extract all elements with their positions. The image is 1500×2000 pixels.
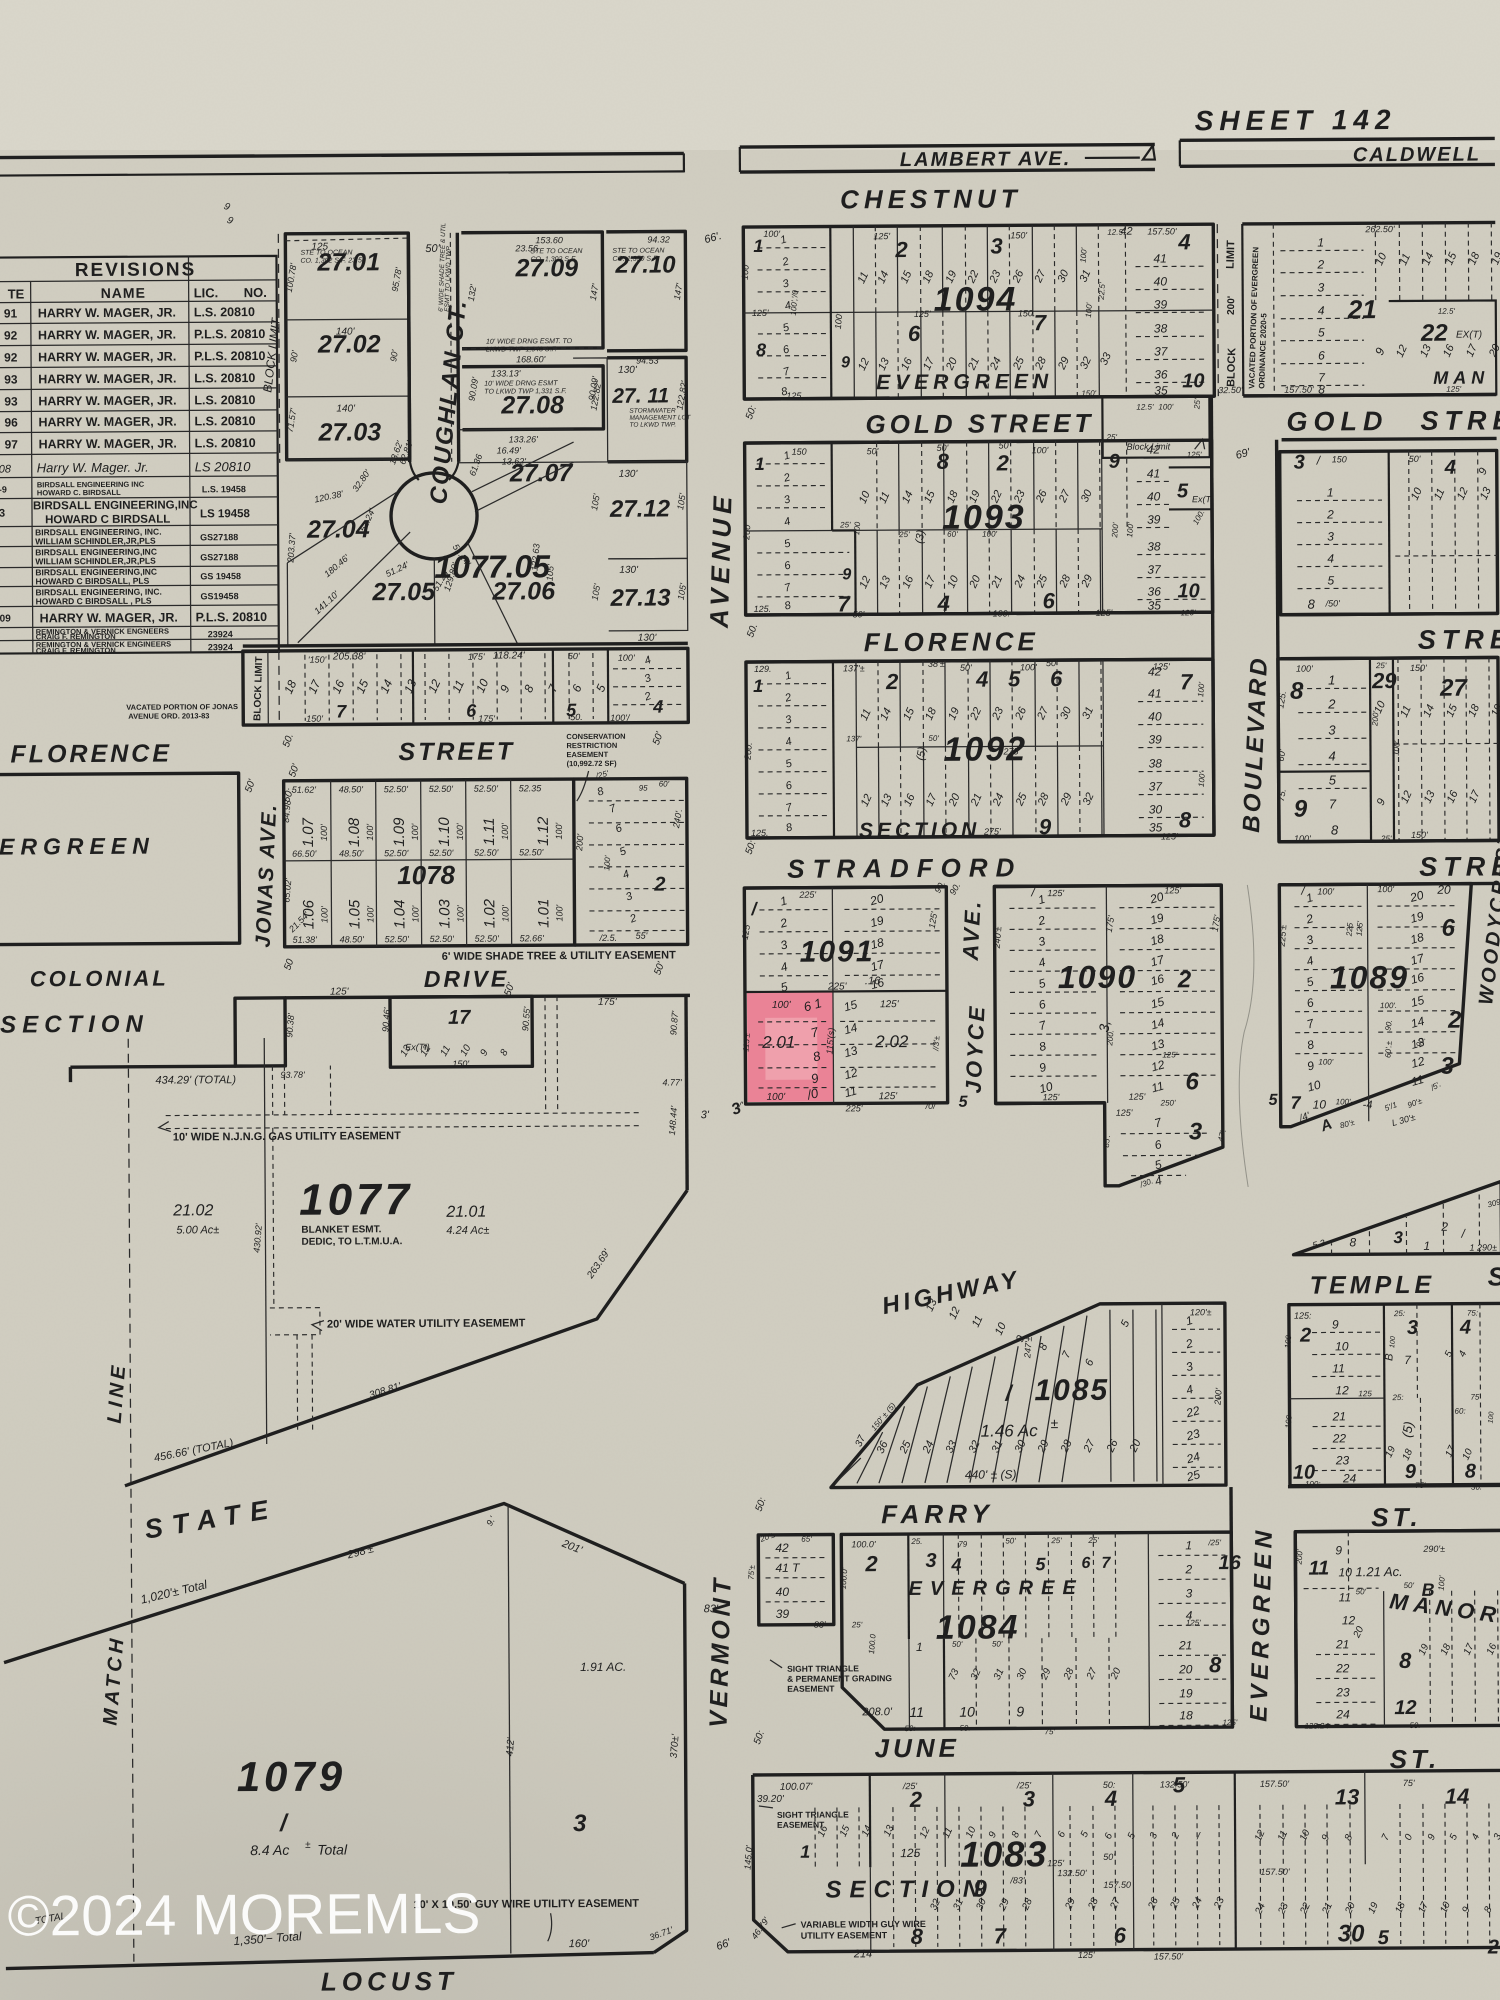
svg-text:21: 21 bbox=[1347, 294, 1377, 324]
svg-text:125': 125' bbox=[1129, 1092, 1146, 1102]
svg-text:140': 140' bbox=[336, 403, 356, 414]
svg-text:42: 42 bbox=[775, 1541, 789, 1555]
svg-text:42: 42 bbox=[1147, 442, 1161, 456]
svg-text:TO LKWD TWP 1,331 S.F.: TO LKWD TWP 1,331 S.F. bbox=[484, 388, 566, 396]
svg-text:3: 3 bbox=[1440, 1053, 1454, 1080]
svg-text:1090: 1090 bbox=[1058, 959, 1137, 995]
svg-text:30: 30 bbox=[1149, 802, 1163, 816]
svg-text:17: 17 bbox=[448, 1007, 471, 1029]
svg-text:2: 2 bbox=[1327, 696, 1336, 711]
svg-text:21: 21 bbox=[1335, 1637, 1349, 1651]
svg-text:18: 18 bbox=[1179, 1708, 1193, 1722]
svg-text:79: 79 bbox=[958, 1540, 968, 1549]
svg-text:100': 100' bbox=[319, 824, 329, 841]
svg-text:1084: 1084 bbox=[936, 1608, 1020, 1647]
svg-text:100': 100' bbox=[1197, 771, 1207, 787]
svg-text:1.04: 1.04 bbox=[391, 899, 408, 928]
svg-text:1: 1 bbox=[916, 1640, 923, 1654]
svg-text:21.01: 21.01 bbox=[445, 1204, 486, 1221]
svg-text:HOWARD C BIRDSALL: HOWARD C BIRDSALL bbox=[45, 514, 170, 527]
svg-text:125': 125' bbox=[1043, 1092, 1060, 1102]
svg-text:52.66': 52.66' bbox=[520, 933, 545, 943]
svg-text:100: 100 bbox=[1284, 1414, 1294, 1429]
svg-text:1085: 1085 bbox=[1034, 1374, 1109, 1407]
svg-text:6' WIDE SHADE TREE & UTILITY E: 6' WIDE SHADE TREE & UTILITY EASEMENT bbox=[442, 949, 676, 962]
svg-text:125': 125' bbox=[1047, 888, 1064, 898]
svg-text:5: 5 bbox=[1035, 1554, 1046, 1574]
svg-text:100': 100' bbox=[1296, 664, 1313, 674]
svg-text:1077: 1077 bbox=[299, 1175, 413, 1225]
svg-text:94.32: 94.32 bbox=[647, 234, 670, 244]
svg-text:5.00 Ac±: 5.00 Ac± bbox=[176, 1224, 219, 1236]
svg-text:FLORENCE: FLORENCE bbox=[10, 740, 172, 769]
svg-text:CO. 1,302 S.F. 23.56: CO. 1,302 S.F. 23.56 bbox=[300, 257, 365, 264]
svg-text:200.: 200. bbox=[742, 742, 753, 761]
svg-text:100.07': 100.07' bbox=[780, 1782, 814, 1793]
svg-text:100': 100' bbox=[740, 262, 751, 280]
svg-text:1.08: 1.08 bbox=[346, 817, 363, 847]
svg-text:SHEET 142: SHEET 142 bbox=[1195, 104, 1397, 136]
svg-text:10: 10 bbox=[1182, 370, 1204, 392]
svg-text:100: 100 bbox=[1389, 1336, 1397, 1348]
svg-text:9: 9 bbox=[1335, 1543, 1342, 1557]
svg-text:100: 100 bbox=[1283, 1334, 1293, 1349]
svg-text:UTILITY EASEMENT: UTILITY EASEMENT bbox=[801, 1930, 888, 1941]
svg-text:27.07: 27.07 bbox=[509, 459, 574, 487]
svg-text:13: 13 bbox=[1335, 1784, 1360, 1809]
svg-text:1.01: 1.01 bbox=[535, 899, 552, 928]
svg-text:5: 5 bbox=[1269, 1092, 1279, 1109]
svg-text:40: 40 bbox=[1154, 274, 1168, 288]
svg-text:29: 29 bbox=[1371, 668, 1397, 693]
svg-text:1: 1 bbox=[755, 454, 765, 474]
svg-text:12: 12 bbox=[1342, 1613, 1356, 1627]
svg-text:1078: 1078 bbox=[397, 860, 456, 890]
svg-text:60'.±: 60'.± bbox=[1383, 1040, 1393, 1058]
svg-text:5: 5 bbox=[959, 1094, 969, 1111]
svg-text:65.02': 65.02' bbox=[281, 878, 293, 903]
svg-text:50': 50' bbox=[568, 651, 580, 661]
svg-text:125': 125' bbox=[752, 308, 769, 318]
svg-text:25': 25' bbox=[898, 530, 910, 539]
svg-text:52.50': 52.50' bbox=[474, 848, 499, 858]
svg-text:200': 200' bbox=[1370, 710, 1380, 727]
svg-text:2: 2 bbox=[1184, 1562, 1192, 1576]
svg-text:100: 100 bbox=[852, 521, 862, 536]
svg-text:125': 125' bbox=[880, 999, 900, 1010]
svg-text:25': 25' bbox=[1192, 398, 1202, 411]
svg-text:-4: -4 bbox=[1363, 1099, 1373, 1111]
svg-text:GS27188: GS27188 bbox=[200, 552, 238, 562]
svg-text:CHESTNUT: CHESTNUT bbox=[840, 183, 1022, 214]
svg-text:HARRY W. MAGER, JR.: HARRY W. MAGER, JR. bbox=[38, 414, 176, 429]
svg-text:RESTRICTION: RESTRICTION bbox=[566, 741, 617, 750]
svg-text:6: 6 bbox=[1318, 348, 1325, 362]
svg-text:39: 39 bbox=[1147, 512, 1161, 526]
svg-text:91: 91 bbox=[4, 306, 18, 320]
svg-text:39.20': 39.20' bbox=[757, 1794, 785, 1805]
svg-text:11: 11 bbox=[1339, 1590, 1352, 1604]
svg-text:40: 40 bbox=[776, 1585, 790, 1599]
svg-text:200': 200' bbox=[574, 833, 585, 852]
svg-text:1.10: 1.10 bbox=[436, 817, 453, 847]
svg-text:125': 125' bbox=[1162, 1050, 1177, 1059]
svg-text:23: 23 bbox=[1335, 1453, 1350, 1467]
svg-text:11: 11 bbox=[1332, 1361, 1345, 1375]
svg-text:90': 90' bbox=[288, 350, 300, 364]
svg-text:100': 100' bbox=[1020, 662, 1037, 672]
svg-text:1.11: 1.11 bbox=[481, 817, 498, 845]
svg-text:100': 100' bbox=[319, 906, 329, 923]
svg-text:27.02: 27.02 bbox=[317, 330, 381, 358]
svg-text:AVE.: AVE. bbox=[958, 898, 986, 962]
svg-text:95: 95 bbox=[639, 784, 649, 793]
svg-text:38: 38 bbox=[1154, 321, 1168, 335]
svg-text:100': 100' bbox=[767, 1092, 787, 1103]
svg-text:1.07: 1.07 bbox=[300, 817, 317, 847]
svg-text:60': 60' bbox=[1276, 749, 1288, 763]
svg-text:STREET: STREET bbox=[398, 737, 515, 766]
svg-text:115'±: 115'± bbox=[741, 1032, 752, 1052]
svg-text:VERMONT: VERMONT bbox=[704, 1575, 736, 1729]
svg-text:125': 125' bbox=[1047, 1858, 1064, 1868]
svg-text:EASEMENT: EASEMENT bbox=[566, 750, 608, 759]
svg-text:STE TO OCEAN: STE TO OCEAN bbox=[300, 249, 353, 256]
svg-text:CO. 1,302 S.F.: CO. 1,302 S.F. bbox=[530, 256, 576, 263]
svg-text:157.50': 157.50' bbox=[1284, 385, 1314, 395]
svg-text:7: 7 bbox=[1101, 1555, 1111, 1572]
svg-text:25': 25' bbox=[1087, 1536, 1099, 1545]
svg-text:4: 4 bbox=[1459, 1317, 1471, 1339]
svg-text:100: 100 bbox=[1488, 1411, 1496, 1423]
svg-text:50': 50' bbox=[992, 1639, 1003, 1648]
svg-text:DRIVE: DRIVE bbox=[424, 965, 509, 992]
svg-text:L.S. 20810: L.S. 20810 bbox=[194, 371, 255, 385]
svg-text:27: 27 bbox=[1439, 675, 1469, 702]
svg-text:FARRY: FARRY bbox=[881, 1499, 994, 1530]
svg-text:100': 100' bbox=[500, 823, 510, 840]
svg-text:100': 100' bbox=[554, 822, 564, 839]
svg-text:20: 20 bbox=[1436, 883, 1451, 897]
svg-text:HARRY W. MAGER, JR.: HARRY W. MAGER, JR. bbox=[38, 371, 176, 386]
svg-text:STE TO OCEAN: STE TO OCEAN bbox=[530, 248, 583, 255]
svg-text:LIMIT: LIMIT bbox=[1225, 240, 1238, 269]
svg-text:100'-: 100'- bbox=[1336, 1097, 1354, 1106]
svg-text:150': 150' bbox=[306, 714, 323, 724]
svg-text:38: 38 bbox=[1149, 756, 1163, 770]
svg-text:370±': 370±' bbox=[669, 1733, 682, 1759]
svg-text:90.46': 90.46' bbox=[380, 1007, 392, 1032]
svg-text:6: 6 bbox=[1042, 588, 1055, 613]
svg-text:(3): (3) bbox=[913, 529, 927, 545]
svg-text:MAN: MAN bbox=[1433, 367, 1489, 387]
svg-text:7: 7 bbox=[1180, 669, 1194, 694]
svg-text:11: 11 bbox=[1308, 1557, 1329, 1579]
svg-text:175': 175' bbox=[468, 652, 485, 662]
svg-text:412': 412' bbox=[505, 1736, 518, 1757]
svg-text:GS27188: GS27188 bbox=[200, 532, 238, 542]
svg-text:100'.: 100'. bbox=[1380, 1001, 1397, 1010]
svg-text:16.49': 16.49' bbox=[497, 445, 522, 455]
svg-text:133.26': 133.26' bbox=[509, 434, 539, 444]
svg-text:125': 125' bbox=[879, 1091, 899, 1102]
svg-text:.16: .16 bbox=[865, 975, 881, 987]
svg-text:1079: 1079 bbox=[237, 1752, 347, 1800]
svg-text:75.: 75. bbox=[1276, 788, 1288, 802]
svg-text:83': 83' bbox=[814, 1620, 826, 1630]
svg-text:48.50': 48.50' bbox=[340, 934, 365, 944]
svg-text:50.: 50. bbox=[959, 1724, 970, 1733]
svg-text:40: 40 bbox=[1148, 709, 1162, 723]
svg-text:25.: 25. bbox=[910, 1537, 922, 1546]
svg-text:25': 25' bbox=[839, 520, 851, 529]
svg-text:100': 100' bbox=[1392, 740, 1402, 756]
svg-text:125': 125' bbox=[1078, 1950, 1095, 1960]
svg-text:-9: -9 bbox=[0, 485, 7, 495]
svg-text:434.29' (TOTAL): 434.29' (TOTAL) bbox=[155, 1074, 236, 1086]
svg-text:100': 100' bbox=[1079, 247, 1089, 263]
svg-text:50': 50' bbox=[1409, 454, 1421, 464]
svg-text:1.05: 1.05 bbox=[346, 899, 363, 929]
svg-text:52.50': 52.50' bbox=[384, 848, 409, 858]
svg-text:6: 6 bbox=[1050, 666, 1063, 691]
svg-text:27.03: 27.03 bbox=[317, 418, 381, 446]
svg-text:36: 36 bbox=[1147, 584, 1161, 598]
svg-text:SECTION: SECTION bbox=[0, 1011, 149, 1039]
svg-text:65': 65' bbox=[801, 1535, 812, 1544]
svg-text:GS19458: GS19458 bbox=[200, 591, 238, 601]
svg-text:6: 6 bbox=[1185, 1068, 1199, 1095]
svg-text:8: 8 bbox=[1209, 1652, 1222, 1677]
svg-text:100': 100' bbox=[1196, 681, 1206, 697]
svg-text:240'±: 240'± bbox=[992, 926, 1004, 949]
svg-text:21: 21 bbox=[1332, 1409, 1346, 1423]
svg-text:125: 125 bbox=[1358, 1389, 1372, 1398]
svg-text:100': 100' bbox=[1318, 1057, 1333, 1066]
svg-text:50': 50' bbox=[1046, 658, 1058, 668]
svg-text:1: 1 bbox=[800, 1842, 810, 1862]
svg-text:90.87': 90.87' bbox=[668, 1010, 680, 1035]
svg-text:& PERMANENT GRADING: & PERMANENT GRADING bbox=[787, 1673, 892, 1684]
svg-text:±: ± bbox=[1051, 1415, 1059, 1431]
svg-text:100': 100' bbox=[833, 312, 844, 330]
svg-text:168.60': 168.60' bbox=[516, 354, 546, 364]
svg-text:4: 4 bbox=[975, 667, 988, 692]
svg-text:100': 100' bbox=[1437, 1575, 1447, 1591]
svg-text:27.13: 27.13 bbox=[609, 584, 671, 611]
svg-text:100': 100' bbox=[1158, 402, 1173, 411]
svg-text:TO LKWD TWP.: TO LKWD TWP. bbox=[629, 421, 676, 428]
svg-text:4: 4 bbox=[1444, 457, 1456, 479]
svg-text:DEDIC, TO L.T.M.U.A.: DEDIC, TO L.T.M.U.A. bbox=[301, 1236, 402, 1248]
svg-text:6: 6 bbox=[1114, 1923, 1127, 1948]
svg-text:22: 22 bbox=[1335, 1661, 1350, 1675]
svg-text:2.01: 2.01 bbox=[761, 1033, 795, 1052]
svg-text:125': 125' bbox=[1153, 661, 1170, 671]
svg-text:JOYCE: JOYCE bbox=[961, 1003, 990, 1094]
svg-text:225': 225' bbox=[845, 1103, 863, 1113]
svg-text:205.38': 205.38' bbox=[332, 651, 367, 662]
svg-text:130': 130' bbox=[619, 469, 639, 480]
svg-text:EVERGREEN: EVERGREEN bbox=[1245, 1526, 1278, 1722]
svg-text:3: 3 bbox=[1186, 1586, 1193, 1600]
svg-text:275': 275' bbox=[1002, 746, 1020, 756]
svg-text:8: 8 bbox=[1465, 1461, 1477, 1483]
svg-text:10: 10 bbox=[1335, 1339, 1349, 1353]
svg-text:25': 25' bbox=[1375, 661, 1387, 670]
svg-text:4.77': 4.77' bbox=[662, 1077, 682, 1087]
svg-text:B: B bbox=[1383, 1353, 1396, 1361]
svg-text:2: 2 bbox=[909, 1787, 923, 1812]
svg-text:CRAIG F. REMINGTON: CRAIG F. REMINGTON bbox=[36, 646, 116, 655]
svg-text:10' WIDE N.J.N.G. GAS UTIL: 10' WIDE N.J.N.G. GAS UTILITY EASEMENT bbox=[173, 1130, 401, 1143]
svg-text:9: 9 bbox=[841, 354, 850, 371]
svg-text:3: 3 bbox=[1327, 529, 1334, 543]
svg-text:BLOCK LIMIT: BLOCK LIMIT bbox=[252, 656, 265, 721]
svg-text:100': 100' bbox=[455, 823, 465, 840]
svg-text:STRE: STRE bbox=[1418, 624, 1500, 655]
svg-text:EX(T): EX(T) bbox=[1456, 330, 1482, 341]
svg-text:50': 50' bbox=[928, 734, 939, 743]
svg-text:1: 1 bbox=[1327, 485, 1334, 499]
svg-text:125: 125 bbox=[900, 1846, 920, 1860]
svg-text:COLONIAL: COLONIAL bbox=[30, 966, 169, 992]
svg-text:1.02: 1.02 bbox=[481, 898, 498, 928]
svg-text:LS 20810: LS 20810 bbox=[195, 459, 252, 474]
svg-text:100': 100' bbox=[772, 1000, 792, 1011]
svg-text:52.50': 52.50' bbox=[429, 848, 454, 858]
svg-text:L.S. 20810: L.S. 20810 bbox=[194, 305, 255, 319]
svg-text:37: 37 bbox=[1149, 779, 1164, 793]
svg-text:HARRY W. MAGER, JR.: HARRY W. MAGER, JR. bbox=[39, 436, 177, 451]
svg-text:4: 4 bbox=[652, 697, 663, 717]
svg-text:3: 3 bbox=[1318, 280, 1325, 294]
svg-text:L.S. 20810: L.S. 20810 bbox=[194, 414, 255, 428]
svg-text:3': 3' bbox=[701, 1109, 710, 1121]
svg-text:38: 38 bbox=[1147, 539, 1161, 553]
svg-text:250': 250' bbox=[1160, 1098, 1176, 1107]
svg-text:2: 2 bbox=[1326, 507, 1334, 521]
svg-text:EVERGREE: EVERGREE bbox=[909, 1577, 1084, 1600]
svg-text:L.S. 20810: L.S. 20810 bbox=[195, 436, 256, 450]
svg-text:100.0': 100.0' bbox=[851, 1539, 876, 1549]
svg-text:132.50': 132.50' bbox=[1160, 1779, 1190, 1789]
svg-text:100': 100' bbox=[1032, 445, 1049, 455]
svg-text:75': 75' bbox=[1044, 1727, 1055, 1736]
svg-text:/2.5.: /2.5. bbox=[599, 933, 618, 943]
svg-text:157.50': 157.50' bbox=[1260, 1867, 1290, 1877]
svg-text:2: 2 bbox=[864, 1551, 878, 1576]
svg-text:214': 214' bbox=[853, 1948, 875, 1960]
svg-text:3: 3 bbox=[1189, 1118, 1203, 1145]
svg-text:23924: 23924 bbox=[208, 629, 233, 639]
svg-text:27.05: 27.05 bbox=[371, 578, 436, 606]
svg-text:52.50': 52.50' bbox=[385, 934, 410, 944]
svg-text:52.50': 52.50' bbox=[430, 934, 455, 944]
svg-text:125': 125' bbox=[1187, 450, 1202, 459]
svg-text:75'±: 75'± bbox=[747, 1564, 757, 1580]
svg-text:7: 7 bbox=[1329, 796, 1337, 811]
svg-text:100'/: 100'/ bbox=[610, 713, 631, 723]
svg-text:2.02: 2.02 bbox=[874, 1032, 909, 1051]
svg-text:66.50': 66.50' bbox=[292, 849, 317, 859]
svg-text:GS 19458: GS 19458 bbox=[200, 571, 241, 581]
svg-text:B: B bbox=[1422, 1580, 1435, 1600]
svg-text:160': 160' bbox=[569, 1938, 590, 1950]
svg-text:10: 10 bbox=[1313, 1097, 1327, 1111]
svg-text:262.50': 262.50' bbox=[1364, 224, 1395, 234]
svg-text:84.98: 84.98 bbox=[281, 800, 293, 823]
svg-text:1094: 1094 bbox=[934, 280, 1018, 319]
svg-text:STRE: STRE bbox=[1419, 851, 1500, 882]
svg-text:225': 225' bbox=[798, 890, 816, 900]
svg-text:50: 50 bbox=[999, 440, 1009, 450]
svg-text:157.50': 157.50' bbox=[1260, 1779, 1290, 1789]
svg-text:HARRY W. MAGER, JR.: HARRY W. MAGER, JR. bbox=[40, 610, 178, 625]
svg-text:50.: 50. bbox=[1409, 1721, 1420, 1730]
svg-text:52.50': 52.50' bbox=[384, 784, 409, 794]
svg-text:157.50': 157.50' bbox=[1147, 226, 1177, 236]
svg-text:132.50': 132.50' bbox=[1057, 1868, 1087, 1878]
svg-text:/50': /50' bbox=[1325, 598, 1341, 608]
svg-text:5: 5 bbox=[1318, 325, 1325, 339]
svg-text:125': 125' bbox=[1446, 385, 1461, 394]
svg-text:3: 3 bbox=[990, 233, 1002, 258]
svg-text:GOLD: GOLD bbox=[1286, 406, 1388, 437]
svg-text:150': 150' bbox=[1411, 830, 1428, 840]
svg-text:1.12: 1.12 bbox=[535, 816, 552, 846]
svg-text:125': 125' bbox=[1164, 885, 1181, 895]
svg-text:1: 1 bbox=[1317, 235, 1324, 249]
svg-text:EVERGREEN: EVERGREEN bbox=[876, 370, 1053, 394]
svg-text:90.: 90. bbox=[1383, 1019, 1394, 1031]
svg-text:125': 125' bbox=[1116, 1108, 1133, 1118]
svg-text:52.50': 52.50' bbox=[474, 784, 499, 794]
svg-text:BLANKET ESMT.: BLANKET ESMT. bbox=[301, 1224, 381, 1235]
svg-text:150.: 150. bbox=[1018, 308, 1036, 318]
svg-text:40: 40 bbox=[1147, 489, 1161, 503]
svg-text:150': 150' bbox=[1410, 663, 1427, 673]
svg-text:5: 5 bbox=[1378, 1927, 1390, 1949]
svg-text:23: 23 bbox=[1335, 1685, 1350, 1699]
svg-text:1 290±: 1 290± bbox=[1469, 1242, 1497, 1252]
svg-text:200': 200' bbox=[1226, 296, 1238, 315]
svg-text:SIGHT TRIANGLE: SIGHT TRIANGLE bbox=[787, 1663, 859, 1673]
svg-text:50': 50' bbox=[937, 443, 949, 453]
svg-text:52.35: 52.35 bbox=[519, 783, 543, 793]
svg-text:92: 92 bbox=[4, 328, 18, 342]
svg-text:105': 105' bbox=[544, 564, 555, 582]
svg-text:41: 41 bbox=[1147, 466, 1160, 480]
svg-text:60': 60' bbox=[659, 779, 670, 788]
svg-text:12: 12 bbox=[1335, 1383, 1349, 1397]
svg-text:2: 2 bbox=[1299, 1325, 1311, 1347]
svg-text:51.38': 51.38' bbox=[293, 935, 318, 945]
svg-text:25': 25' bbox=[851, 1620, 863, 1629]
svg-text:SECTION: SECTION bbox=[825, 1876, 988, 1904]
svg-text:157.50': 157.50' bbox=[1154, 1951, 1184, 1961]
svg-text:137': 137' bbox=[846, 734, 861, 743]
svg-text:200': 200' bbox=[1212, 1388, 1223, 1407]
svg-text:1: 1 bbox=[1328, 672, 1335, 687]
svg-text:12.5': 12.5' bbox=[1438, 307, 1456, 316]
svg-text:CONSERVATION: CONSERVATION bbox=[566, 732, 625, 741]
svg-text:TEMPLE: TEMPLE bbox=[1310, 1271, 1436, 1300]
svg-text:100': 100' bbox=[410, 905, 420, 922]
svg-text:/83': /83' bbox=[1009, 1875, 1025, 1885]
svg-text:93: 93 bbox=[4, 394, 18, 408]
svg-text:90': 90' bbox=[388, 349, 400, 363]
